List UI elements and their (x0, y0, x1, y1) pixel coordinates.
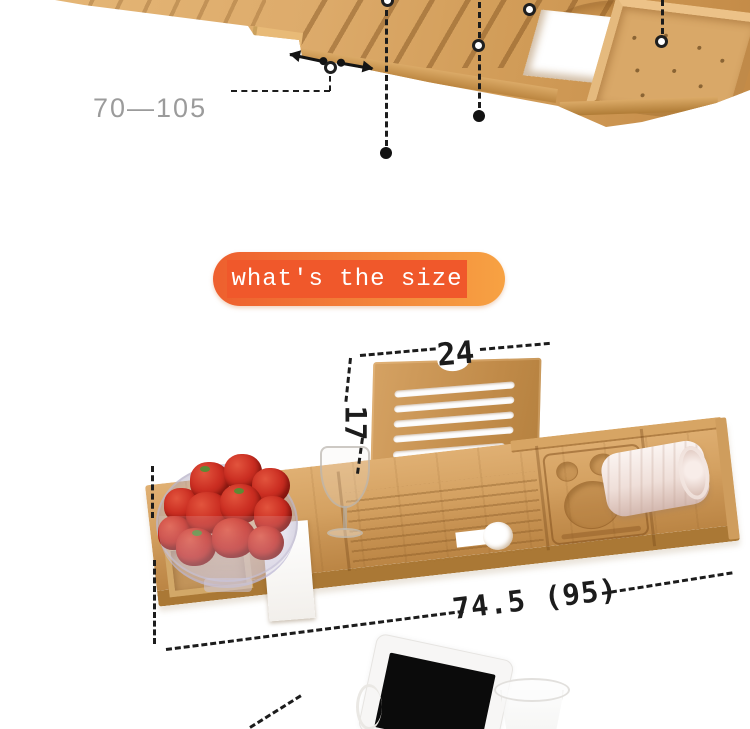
tablet-holder-arm (356, 684, 382, 729)
strawberry-leaf (234, 488, 244, 494)
stand-slot (394, 396, 514, 412)
drain-hole (632, 36, 637, 40)
size-banner-label: what's the size (231, 266, 462, 293)
tray-depth-dash-top (151, 466, 154, 518)
callout-line (385, 10, 388, 146)
strawberry-leaf (200, 466, 210, 472)
callout-elbow-vertical (329, 76, 331, 91)
tray-length-dash-right (602, 571, 733, 595)
callout-ring-icon (324, 61, 337, 74)
corner-dash (249, 694, 301, 728)
product-detail-image: 70—105 what's the size (0, 0, 750, 729)
size-photo: 24 17 74.5 (95) (0, 330, 750, 660)
drinking-glass (494, 678, 572, 729)
top-tray-front-edge-right (560, 96, 718, 116)
callout-ring-icon (523, 3, 536, 16)
drain-hole (635, 68, 640, 72)
size-banner-inner: what's the size (227, 260, 467, 298)
strawberry-bowl (156, 450, 298, 590)
drain-hole (672, 69, 677, 73)
drinking-glass-rim (494, 678, 570, 702)
callout-dot-icon (473, 110, 485, 122)
arrow-head-icon (288, 48, 301, 62)
top-tray-silhouette (0, 0, 750, 165)
stand-slot (393, 426, 513, 442)
stand-width-dash-left (360, 347, 436, 357)
callout-line (661, 0, 664, 34)
stand-width-dash-right (480, 342, 550, 351)
top-tray-left-slats (66, 0, 266, 26)
wine-glass-stem (343, 506, 347, 530)
wine-glass (318, 446, 372, 542)
tray-length-label: 74.5 (95) (451, 572, 620, 626)
glass-bowl-base (204, 578, 252, 592)
stand-slot (394, 411, 514, 427)
callout-elbow-horizontal (231, 90, 330, 92)
stand-width-label: 24 (436, 334, 476, 373)
bottom-photo (0, 640, 750, 729)
callout-line (478, 55, 481, 108)
wine-glass-foot (327, 528, 363, 538)
callout-dot-icon (380, 147, 392, 159)
drain-hole (640, 93, 645, 97)
drain-hole (697, 46, 702, 50)
drain-hole (698, 84, 703, 88)
paw-toe-recess (555, 460, 579, 482)
stand-height-dash-top (344, 358, 352, 402)
arrow-tail-dot (336, 58, 345, 67)
top-caddy-photo: 70—105 (0, 0, 750, 180)
callout-ring-icon (472, 39, 485, 52)
callout-line (478, 2, 481, 38)
drain-hole (720, 59, 725, 63)
stand-slot (394, 381, 514, 397)
size-banner: what's the size (213, 252, 505, 306)
callout-ring-icon (655, 35, 668, 48)
tray-depth-dash-bottom (153, 560, 156, 644)
stand-height-label: 17 (338, 406, 372, 441)
extension-range-label: 70—105 (93, 93, 207, 124)
tablet-screen (374, 652, 495, 729)
wine-glass-bowl (320, 446, 370, 508)
arrow-head-icon (362, 61, 375, 75)
